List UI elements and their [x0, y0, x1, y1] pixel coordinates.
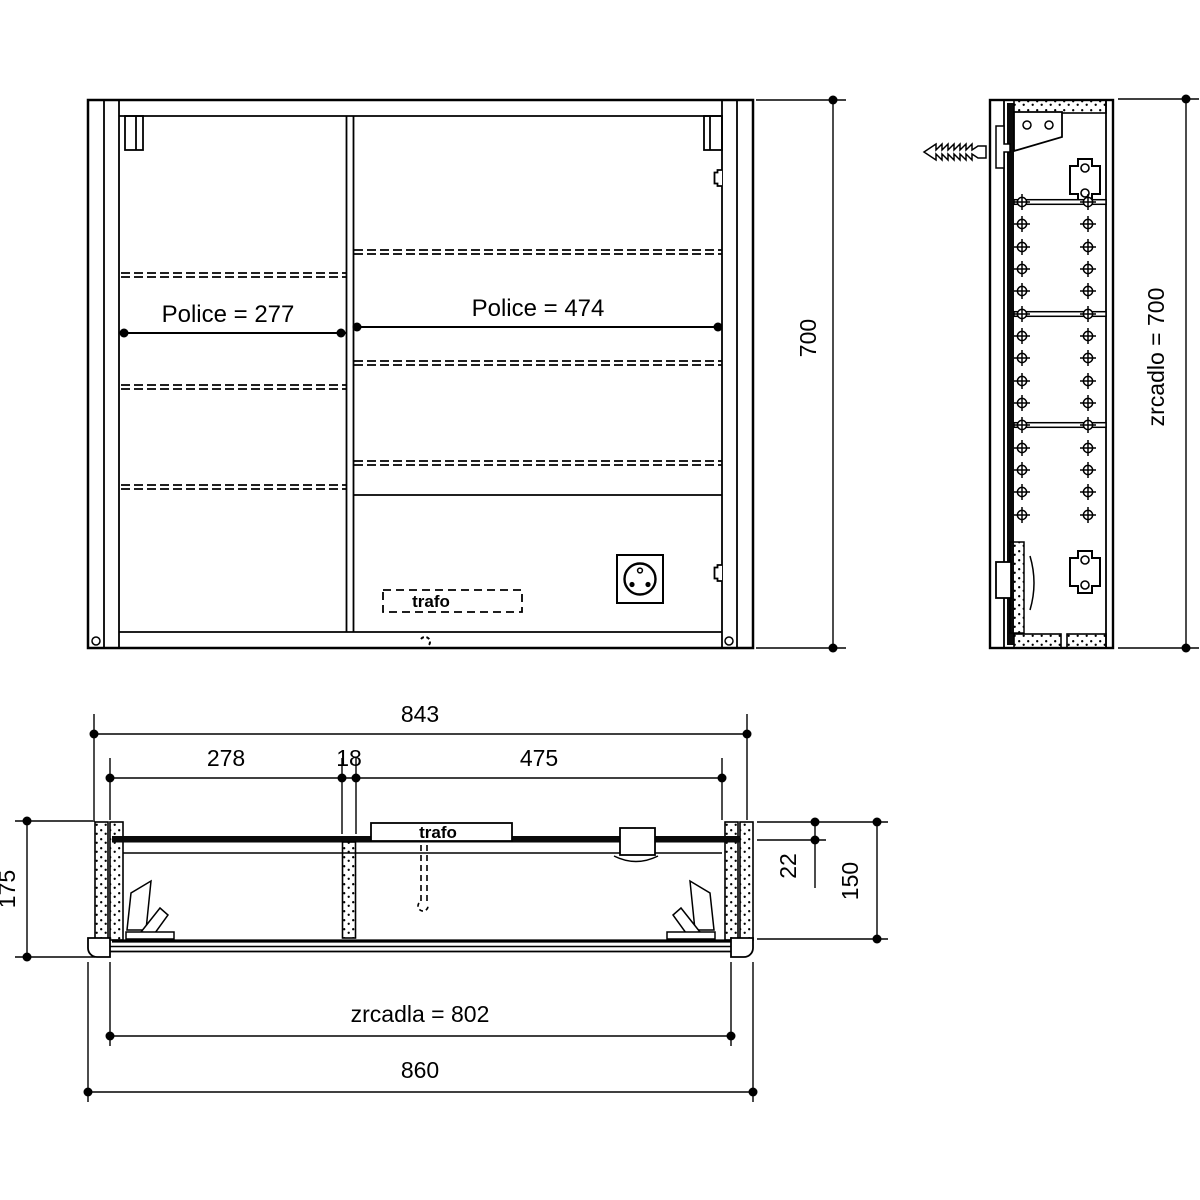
dim-height-700: 700: [756, 96, 846, 653]
door-edge-arc: [1030, 556, 1034, 610]
front-carcass-outline: [88, 100, 753, 648]
door-profile-right: [731, 938, 753, 957]
dim-18-text: 18: [336, 745, 362, 771]
front-view: Police = 277 Police = 474 trafo 700: [88, 96, 846, 653]
socket-icon: [617, 555, 663, 603]
plan-view: trafo: [0, 701, 888, 1102]
hinge-clip-bottom-icon: [715, 565, 723, 581]
handle-profile: [996, 562, 1011, 598]
divider-section: [343, 842, 356, 938]
bottom-panel-section: [1014, 634, 1061, 648]
light-housing-section: [1010, 542, 1024, 633]
mirror-doors-plan: [88, 938, 753, 957]
dim-mirror-height: zrcadlo = 700: [1118, 95, 1199, 653]
cable-exit-icon: [421, 637, 430, 645]
dim-carcass-width: 843: [90, 701, 752, 820]
door-bracket-left-icon: [125, 116, 143, 150]
top-panel-section: [1014, 100, 1106, 113]
hinge-left-icon: [126, 881, 174, 939]
hinge-plate-top-icon: [1070, 159, 1100, 201]
cable-icon: [418, 845, 428, 911]
trafo-box-front: trafo: [383, 590, 522, 612]
dim-802-text: zrcadla = 802: [351, 1001, 490, 1027]
dim-278-text: 278: [207, 745, 245, 771]
side-panel-left-section: [95, 822, 108, 940]
shelf-pin-holes: [1014, 194, 1096, 523]
trafo-label-plan: trafo: [419, 823, 457, 842]
hinge-clip-top-icon: [715, 170, 723, 186]
dim-height-text: 700: [795, 319, 821, 357]
trafo-box-plan: trafo: [371, 823, 512, 842]
shelf-positions-right: [354, 250, 722, 465]
dim-overall-width: 860: [84, 962, 758, 1102]
dim-depth-total: 175: [0, 817, 95, 962]
wall-bracket-icon: [1014, 112, 1062, 151]
shelf-right-label: Police = 474: [472, 295, 605, 322]
dim-mirror-width: zrcadla = 802: [106, 962, 736, 1046]
technical-drawing-page: Police = 277 Police = 474 trafo 700: [0, 0, 1200, 1200]
screw-anchor-icon: [924, 126, 1010, 168]
shelf-left-label: Police = 277: [162, 301, 295, 328]
junction-box-icon: [614, 828, 658, 862]
dim-860-text: 860: [401, 1057, 439, 1083]
screw-hole-right-icon: [725, 637, 733, 645]
screw-hole-left-icon: [92, 637, 100, 645]
hinge-right-icon: [667, 881, 715, 939]
shelf-left: [120, 329, 347, 338]
dim-mirror-height-text: zrcadlo = 700: [1143, 288, 1169, 427]
dim-475-text: 475: [520, 745, 558, 771]
dim-compartments: 278 18 475: [106, 745, 727, 834]
door-bracket-right-icon: [704, 116, 722, 150]
dim-150-text: 150: [837, 862, 863, 900]
dim-depth-body: 150: [757, 818, 888, 944]
dim-back-offset: 22: [757, 818, 888, 889]
door-profile-left: [88, 938, 110, 957]
side-view: zrcadlo = 700: [924, 95, 1199, 653]
hinge-plate-bottom-icon: [1070, 551, 1100, 593]
shelf-right: [353, 323, 723, 332]
dim-843-text: 843: [401, 701, 439, 727]
dim-175-text: 175: [0, 870, 20, 908]
dim-22-text: 22: [775, 853, 801, 879]
trafo-label-front: trafo: [412, 592, 450, 611]
cabinet-drawing: Police = 277 Police = 474 trafo 700: [0, 0, 1200, 1200]
